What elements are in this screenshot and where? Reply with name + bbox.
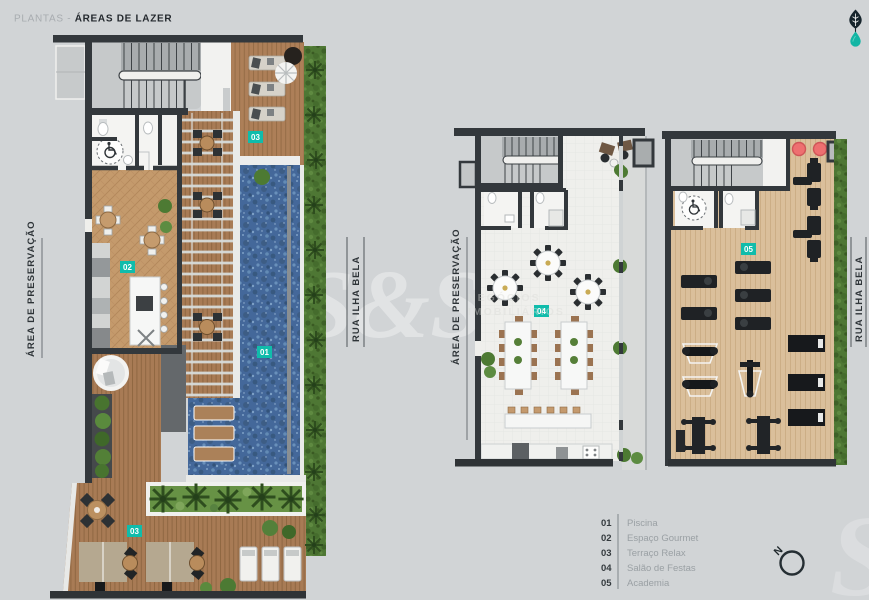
svg-text:IMOBILIÁRIOS: IMOBILIÁRIOS [468, 305, 565, 318]
svg-text:Piscina: Piscina [627, 518, 658, 529]
svg-text:03: 03 [130, 527, 139, 536]
svg-text:02: 02 [601, 533, 612, 544]
svg-text:PLANTAS - ÁREAS DE LAZER: PLANTAS - ÁREAS DE LAZER [14, 12, 172, 25]
svg-text:Salão de Festas: Salão de Festas [627, 563, 696, 574]
svg-text:Terraço Relax: Terraço Relax [627, 548, 686, 559]
svg-text:02: 02 [123, 263, 132, 272]
svg-text:RUA ILHA BELA: RUA ILHA BELA [854, 256, 865, 342]
svg-text:05: 05 [601, 578, 612, 589]
svg-text:04: 04 [601, 563, 612, 574]
svg-text:03: 03 [251, 133, 260, 142]
svg-text:05: 05 [744, 245, 753, 254]
svg-text:01: 01 [601, 518, 612, 529]
svg-text:ÁREA DE PRESERVAÇÃO: ÁREA DE PRESERVAÇÃO [26, 220, 37, 357]
svg-text:Espaço Gourmet: Espaço Gourmet [627, 533, 699, 544]
svg-text:01: 01 [260, 348, 269, 357]
svg-text:NEGÓCIOS: NEGÓCIOS [468, 291, 541, 304]
svg-text:S: S [830, 493, 869, 600]
svg-text:03: 03 [601, 548, 612, 559]
svg-text:ÁREA DE PRESERVAÇÃO: ÁREA DE PRESERVAÇÃO [451, 228, 462, 365]
svg-text:Academia: Academia [627, 578, 670, 589]
svg-text:RUA ILHA BELA: RUA ILHA BELA [351, 256, 362, 342]
